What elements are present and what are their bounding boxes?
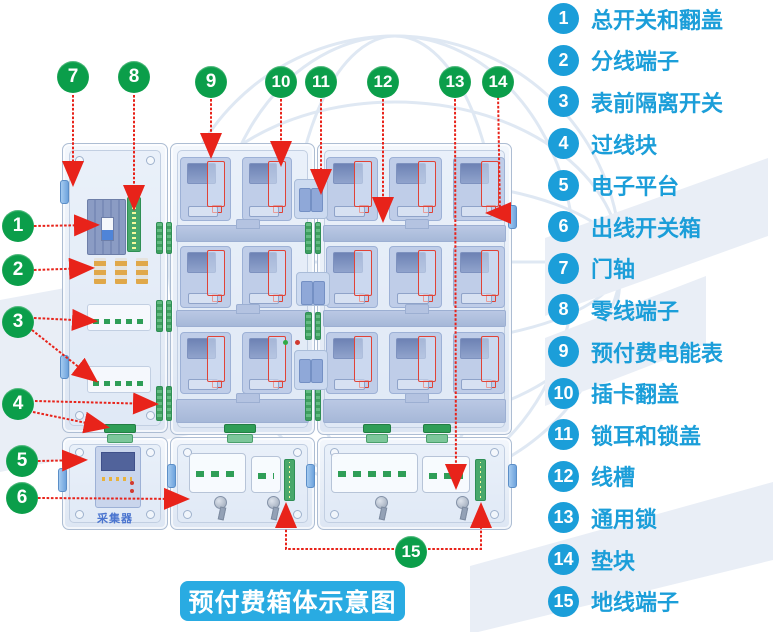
- meter-cell: [389, 157, 441, 221]
- breaker-group: [251, 456, 281, 493]
- wire-duct: [176, 225, 309, 242]
- legend-number-badge: 5: [548, 170, 579, 201]
- green-indicator-led: [283, 340, 288, 345]
- callout-8: 8: [118, 61, 150, 93]
- legend-item: 4过线块: [548, 123, 773, 165]
- collector-screen: [101, 452, 135, 471]
- meter-cell: [453, 332, 505, 394]
- bottom-wire-duct: [176, 399, 309, 423]
- meter-cell: [180, 332, 231, 394]
- legend-number-badge: 1: [548, 3, 579, 34]
- legend-item: 9预付费电能表: [548, 331, 773, 373]
- wire-duct: [176, 310, 309, 327]
- legend-label: 出线开关箱: [591, 211, 701, 243]
- legend-number-badge: 2: [548, 45, 579, 76]
- meter-cell: [180, 246, 231, 308]
- red-indicator-led: [295, 340, 300, 345]
- main-switch-panel: [62, 143, 168, 433]
- collector-led-row: [102, 477, 132, 481]
- legend-label: 过线块: [591, 128, 657, 160]
- wire-through-block: [305, 222, 321, 254]
- lock-ear-and-cover: [296, 272, 330, 306]
- universal-lock-knob: [456, 496, 469, 509]
- legend-label: 通用锁: [591, 502, 657, 534]
- wire-through-block: [423, 424, 451, 446]
- callout-13: 13: [439, 66, 471, 98]
- callout-10: 10: [265, 66, 297, 98]
- door-hinge: [167, 464, 176, 488]
- breaker-group: [422, 456, 470, 493]
- legend-label: 线槽: [591, 460, 635, 492]
- wire-through-block: [156, 386, 172, 421]
- door-hinge: [60, 355, 69, 379]
- legend-item: 13通用锁: [548, 497, 773, 539]
- callout-4: 4: [2, 388, 34, 420]
- legend-label: 总开关和翻盖: [591, 3, 723, 35]
- wire-through-block: [363, 424, 391, 446]
- lock-ear-and-cover: [294, 350, 328, 390]
- callout-12: 12: [367, 66, 399, 98]
- legend-number-badge: 4: [548, 128, 579, 159]
- neutral-terminal-strip: [127, 197, 141, 252]
- bottom-wire-duct: [323, 399, 506, 423]
- callout-6: 6: [6, 482, 38, 514]
- legend-number-badge: 7: [548, 253, 579, 284]
- universal-lock-knob: [267, 496, 280, 509]
- legend-item: 3表前隔离开关: [548, 81, 773, 123]
- universal-lock-knob: [214, 496, 227, 509]
- main-breaker: [87, 199, 126, 255]
- legend-number-badge: 3: [548, 86, 579, 117]
- door-hinge: [306, 464, 315, 488]
- legend-item: 15地线端子: [548, 580, 773, 622]
- door-hinge: [508, 205, 517, 229]
- meter-panel-right: [317, 143, 512, 435]
- legend-label: 垫块: [591, 544, 635, 576]
- lock-ear-and-cover: [294, 179, 328, 219]
- meter-cell: [242, 157, 293, 221]
- meter-cell: [389, 246, 441, 308]
- callout-11: 11: [305, 66, 337, 98]
- wire-duct: [323, 310, 506, 327]
- isolation-switch-upper: [87, 304, 151, 331]
- legend-number-badge: 8: [548, 294, 579, 325]
- legend-number-badge: 6: [548, 211, 579, 242]
- branch-terminal-blocks: [94, 258, 148, 284]
- legend-number-badge: 15: [548, 586, 579, 617]
- wire-through-block: [156, 222, 172, 254]
- prepaid-meter-box-figure: 采集器: [0, 0, 773, 632]
- legend-label: 分线端子: [591, 44, 679, 76]
- legend-item: 2分线端子: [548, 40, 773, 82]
- ground-terminal-strip: [284, 459, 295, 501]
- wire-through-block: [156, 300, 172, 332]
- legend-number-badge: 14: [548, 544, 579, 575]
- legend-item: 6出线开关箱: [548, 206, 773, 248]
- meter-cell: [180, 157, 231, 221]
- universal-lock-knob: [375, 496, 388, 509]
- legend-number-badge: 9: [548, 336, 579, 367]
- legend-item: 7门轴: [548, 248, 773, 290]
- legend-item: 12线槽: [548, 456, 773, 498]
- wire-through-block: [305, 312, 321, 340]
- legend-number-badge: 10: [548, 378, 579, 409]
- legend-item: 5电子平台: [548, 164, 773, 206]
- legend-item: 11锁耳和锁盖: [548, 414, 773, 456]
- meter-cell: [453, 246, 505, 308]
- wire-duct: [323, 225, 506, 242]
- meter-cell: [326, 246, 378, 308]
- wire-through-block: [224, 424, 256, 446]
- legend-item: 10插卡翻盖: [548, 372, 773, 414]
- isolation-switch-lower: [87, 366, 151, 393]
- meter-cell: [453, 157, 505, 221]
- callout-14: 14: [482, 66, 514, 98]
- electronic-platform-box: 采集器: [62, 437, 168, 530]
- breaker-group: [331, 453, 418, 493]
- meter-cell: [389, 332, 441, 394]
- legend: 1总开关和翻盖 2分线端子 3表前隔离开关 4过线块 5电子平台 6出线开关箱 …: [548, 0, 773, 622]
- legend-label: 预付费电能表: [591, 336, 723, 368]
- door-hinge: [60, 180, 69, 204]
- callout-9: 9: [195, 66, 227, 98]
- callout-1: 1: [2, 210, 34, 242]
- callout-7: 7: [57, 61, 89, 93]
- legend-label: 插卡翻盖: [591, 377, 679, 409]
- legend-number-badge: 13: [548, 502, 579, 533]
- ground-terminal-strip: [475, 459, 486, 501]
- meter-cell: [242, 246, 293, 308]
- legend-label: 门轴: [591, 252, 635, 284]
- door-hinge: [58, 468, 67, 492]
- callout-2: 2: [2, 254, 34, 286]
- legend-item: 8零线端子: [548, 289, 773, 331]
- legend-item: 14垫块: [548, 539, 773, 581]
- breaker-group: [189, 453, 246, 493]
- legend-number-badge: 12: [548, 461, 579, 492]
- legend-item: 1总开关和翻盖: [548, 0, 773, 40]
- diagram-title: 预付费箱体示意图: [180, 581, 405, 621]
- legend-label: 锁耳和锁盖: [591, 419, 701, 451]
- callout-3: 3: [2, 306, 34, 338]
- collector-label: 采集器: [63, 510, 167, 526]
- data-collector-device: [95, 446, 141, 508]
- wire-through-block: [305, 386, 321, 421]
- legend-label: 电子平台: [591, 169, 679, 201]
- door-hinge: [508, 464, 517, 488]
- wire-through-block: [104, 424, 136, 446]
- meter-cell: [326, 157, 378, 221]
- meter-cell: [326, 332, 378, 394]
- outgoing-switch-box-left: [170, 437, 315, 530]
- legend-label: 零线端子: [591, 294, 679, 326]
- legend-number-badge: 11: [548, 419, 579, 450]
- callout-15: 15: [395, 536, 427, 568]
- outgoing-switch-box-right: [317, 437, 512, 530]
- legend-label: 地线端子: [591, 585, 679, 617]
- callout-5: 5: [6, 445, 38, 477]
- legend-label: 表前隔离开关: [591, 86, 723, 118]
